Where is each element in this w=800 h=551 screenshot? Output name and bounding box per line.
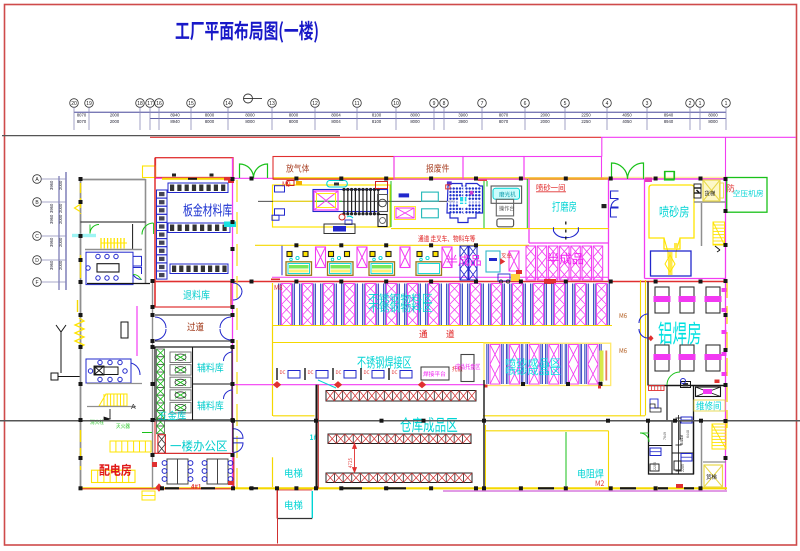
svg-text:18: 18 <box>137 101 143 107</box>
svg-text:14: 14 <box>225 101 231 107</box>
svg-text:10: 10 <box>393 101 399 107</box>
svg-text:8000: 8000 <box>245 119 255 124</box>
svg-text:15: 15 <box>188 101 194 107</box>
svg-text:8070: 8070 <box>499 113 509 118</box>
svg-text:8940: 8940 <box>170 113 180 118</box>
svg-text:12: 12 <box>312 101 318 107</box>
svg-text:17: 17 <box>147 101 153 107</box>
svg-text:8: 8 <box>443 101 446 107</box>
svg-text:6: 6 <box>524 101 527 107</box>
svg-text:3960: 3960 <box>49 237 54 247</box>
svg-text:2285: 2285 <box>653 462 657 470</box>
svg-text:3960: 3960 <box>49 180 54 190</box>
svg-text:8000: 8000 <box>245 113 255 118</box>
svg-text:7649: 7649 <box>663 432 667 440</box>
svg-text:D: D <box>35 258 39 264</box>
svg-text:6448: 6448 <box>686 430 690 438</box>
svg-text:11: 11 <box>354 101 359 107</box>
svg-text:8000: 8000 <box>708 113 718 118</box>
svg-text:8000: 8000 <box>205 113 215 118</box>
svg-text:8070: 8070 <box>499 119 509 124</box>
svg-text:1: 1 <box>699 101 702 107</box>
svg-text:4: 4 <box>606 101 609 107</box>
svg-text:8004: 8004 <box>331 119 341 124</box>
svg-text:9: 9 <box>433 101 436 107</box>
svg-text:3960: 3960 <box>49 260 54 270</box>
svg-text:7: 7 <box>481 101 484 107</box>
svg-text:8070: 8070 <box>77 119 87 124</box>
svg-text:2000: 2000 <box>58 203 63 213</box>
svg-text:2000: 2000 <box>58 214 63 224</box>
svg-text:4050: 4050 <box>622 113 632 118</box>
svg-text:19: 19 <box>86 101 92 107</box>
svg-text:16: 16 <box>156 101 162 107</box>
svg-text:8000: 8000 <box>708 119 718 124</box>
svg-text:2000: 2000 <box>110 119 120 124</box>
svg-text:13: 13 <box>269 101 275 107</box>
svg-text:6448: 6448 <box>679 434 684 445</box>
svg-text:2000: 2000 <box>58 180 63 190</box>
svg-text:8070: 8070 <box>77 113 87 118</box>
svg-text:8000: 8000 <box>410 119 420 124</box>
svg-text:8940: 8940 <box>664 119 674 124</box>
svg-text:3960: 3960 <box>49 214 54 224</box>
svg-text:C: C <box>35 234 39 240</box>
svg-text:2250: 2250 <box>581 113 591 118</box>
svg-text:8004: 8004 <box>331 113 341 118</box>
svg-text:3900: 3900 <box>458 119 468 124</box>
svg-text:F: F <box>35 280 38 286</box>
svg-text:8000: 8000 <box>289 113 299 118</box>
svg-text:2000: 2000 <box>58 260 63 270</box>
svg-text:1: 1 <box>725 101 728 107</box>
svg-text:2: 2 <box>689 101 692 107</box>
svg-text:2000: 2000 <box>540 113 550 118</box>
svg-text:8000: 8000 <box>289 119 299 124</box>
svg-text:3900: 3900 <box>458 113 468 118</box>
svg-text:20: 20 <box>71 101 77 107</box>
svg-text:8000: 8000 <box>205 119 215 124</box>
svg-text:8940: 8940 <box>170 119 180 124</box>
svg-text:8940: 8940 <box>664 113 674 118</box>
svg-text:4050: 4050 <box>622 119 632 124</box>
svg-text:3: 3 <box>646 101 649 107</box>
svg-text:A: A <box>131 404 136 411</box>
svg-text:2000: 2000 <box>58 237 63 247</box>
svg-text:2000: 2000 <box>540 119 550 124</box>
svg-text:8100: 8100 <box>372 113 382 118</box>
svg-text:2000: 2000 <box>110 113 120 118</box>
svg-text:8100: 8100 <box>372 119 382 124</box>
svg-text:3960: 3960 <box>49 203 54 213</box>
svg-text:5: 5 <box>564 101 567 107</box>
svg-text:2250: 2250 <box>581 119 591 124</box>
svg-text:8000: 8000 <box>410 113 420 118</box>
svg-text:2285: 2285 <box>681 464 685 472</box>
